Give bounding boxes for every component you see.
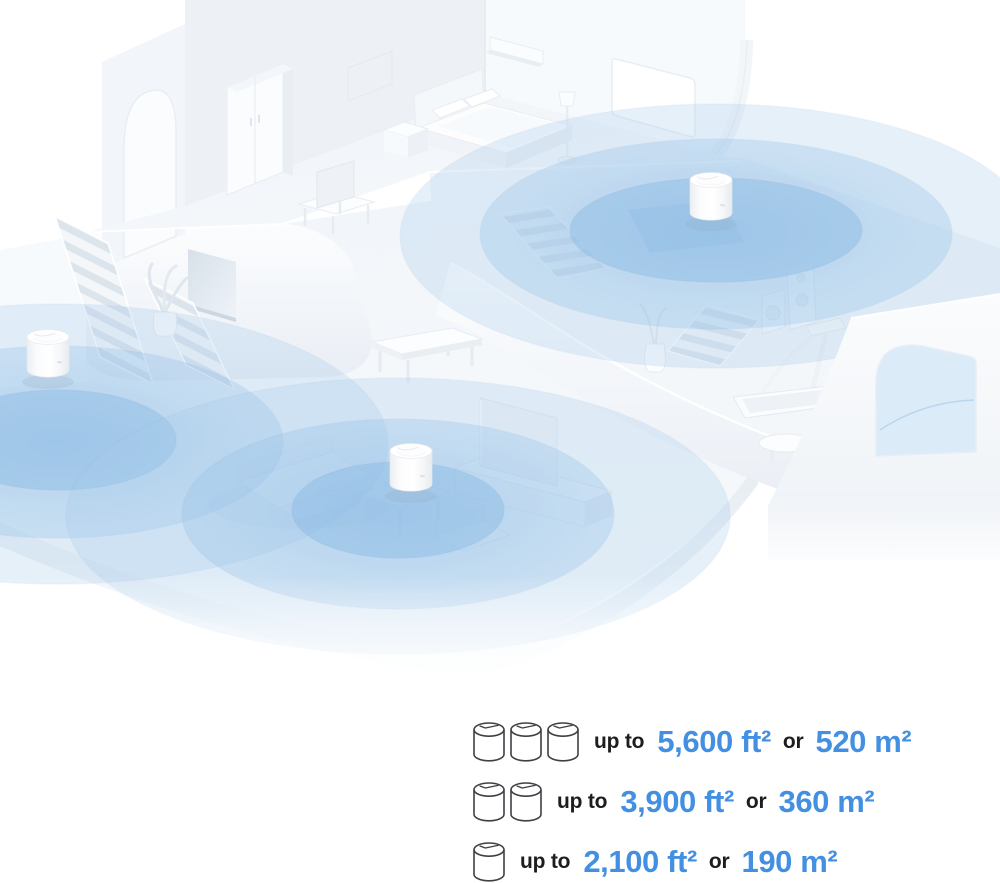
- up-to-label: up to: [520, 850, 570, 874]
- deco-router-upper: [685, 173, 737, 231]
- legend-row-3-units: up to 5,600 ft² or 520 m²: [472, 712, 911, 772]
- deco-router-living: [385, 444, 437, 503]
- or-label: or: [746, 790, 767, 814]
- house-illustration: [0, 0, 1000, 710]
- coverage-sqft-value: 3,900 ft²: [620, 784, 734, 820]
- coverage-sqft-value: 2,100 ft²: [583, 844, 697, 880]
- up-to-label: up to: [594, 730, 644, 754]
- or-label: or: [709, 850, 730, 874]
- coverage-sqm-value: 520 m²: [815, 724, 911, 760]
- deco-cylinder-icon: [472, 721, 506, 763]
- legend-row-2-units: up to 3,900 ft² or 360 m²: [472, 772, 911, 832]
- up-to-label: up to: [557, 790, 607, 814]
- bottom-fade: [0, 575, 1000, 710]
- deco-units-icons: [472, 841, 506, 883]
- deco-cylinder-icon: [546, 721, 580, 763]
- deco-cylinder-icon: [472, 841, 506, 883]
- arch-doorway-opening: [124, 90, 176, 258]
- deco-units-icons: [472, 721, 580, 763]
- deco-router-left: [22, 330, 74, 389]
- coverage-sqft-value: 5,600 ft²: [657, 724, 771, 760]
- deco-cylinder-icon: [509, 781, 543, 823]
- nightstand: [384, 122, 428, 158]
- coverage-legend: up to 5,600 ft² or 520 m² up to 3,900 ft…: [472, 712, 911, 883]
- deco-cylinder-icon: [472, 781, 506, 823]
- or-label: or: [783, 730, 804, 754]
- deco-cylinder-icon: [509, 721, 543, 763]
- page: up to 5,600 ft² or 520 m² up to 3,900 ft…: [0, 0, 1000, 883]
- wall-fade: [745, 495, 1000, 575]
- coverage-sqm-value: 190 m²: [741, 844, 837, 880]
- legend-row-1-unit: up to 2,100 ft² or 190 m²: [472, 832, 911, 883]
- coverage-sqm-value: 360 m²: [778, 784, 874, 820]
- deco-units-icons: [472, 781, 543, 823]
